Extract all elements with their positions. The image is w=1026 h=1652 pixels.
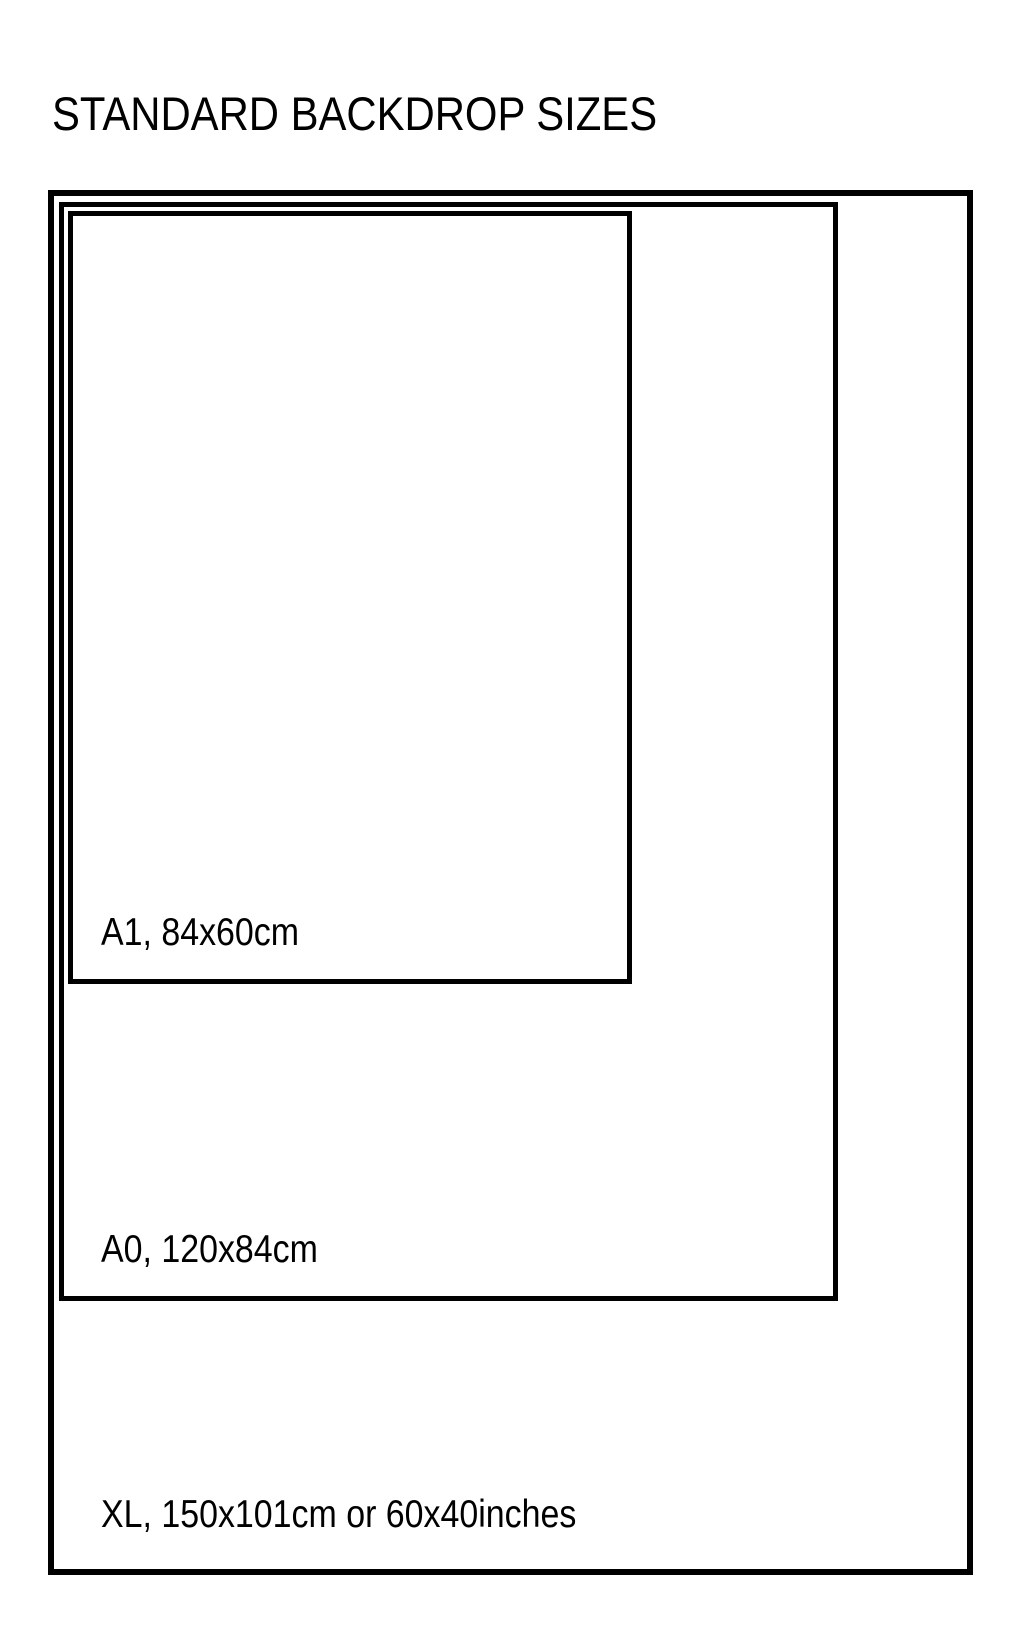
a1-size-rectangle — [68, 211, 632, 984]
a1-size-label: A1, 84x60cm — [101, 913, 299, 952]
a0-size-label: A0, 120x84cm — [101, 1230, 318, 1269]
backdrop-sizes-diagram: STANDARD BACKDROP SIZES A1, 84x60cm A0, … — [0, 0, 1026, 1652]
page-title: STANDARD BACKDROP SIZES — [52, 90, 657, 137]
xl-size-label: XL, 150x101cm or 60x40inches — [101, 1495, 576, 1534]
